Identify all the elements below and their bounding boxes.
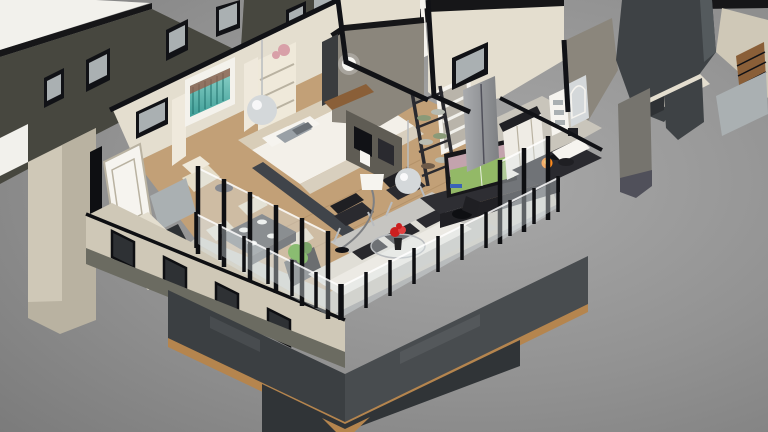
railing-post <box>290 260 294 296</box>
towel-roll-2 <box>554 110 564 115</box>
railing-post <box>340 284 344 320</box>
desk-chair <box>558 158 574 166</box>
mirror-ball-highlight <box>400 173 408 181</box>
curtain-left <box>172 93 186 166</box>
apartment-floorplan-render <box>0 0 768 432</box>
railing-post <box>314 272 318 308</box>
railing-post <box>242 236 246 272</box>
railing-post <box>460 224 464 260</box>
railing-post <box>194 212 198 248</box>
shelf-flowers-2 <box>272 51 280 59</box>
vanity-mirror <box>322 34 338 106</box>
render-stage <box>0 0 768 432</box>
stacked-dishes <box>419 139 433 145</box>
railing-post <box>364 272 368 308</box>
pendant-highlight <box>252 100 262 110</box>
tv-scoreboard <box>450 184 462 188</box>
railing-post <box>508 200 512 236</box>
lamp-drum-shade <box>360 174 384 190</box>
railing-post <box>266 248 270 284</box>
stacked-dishes <box>421 163 435 169</box>
glass-sphere-pendant <box>247 95 277 125</box>
lamp-base <box>335 247 349 253</box>
stacked-dishes <box>417 115 431 121</box>
flower-vase <box>394 238 402 250</box>
railing-post <box>532 188 536 224</box>
mirror-ball-pendant <box>395 168 421 194</box>
railing-post <box>218 224 222 260</box>
railing-post <box>556 176 560 212</box>
railing-post <box>484 212 488 248</box>
stacked-dishes <box>433 133 447 139</box>
towel-roll-1 <box>553 100 563 105</box>
railing-post <box>412 248 416 284</box>
red-flowers-3 <box>396 223 402 229</box>
railing-post <box>388 260 392 296</box>
stacked-dishes <box>431 109 445 115</box>
railing-post <box>436 236 440 272</box>
